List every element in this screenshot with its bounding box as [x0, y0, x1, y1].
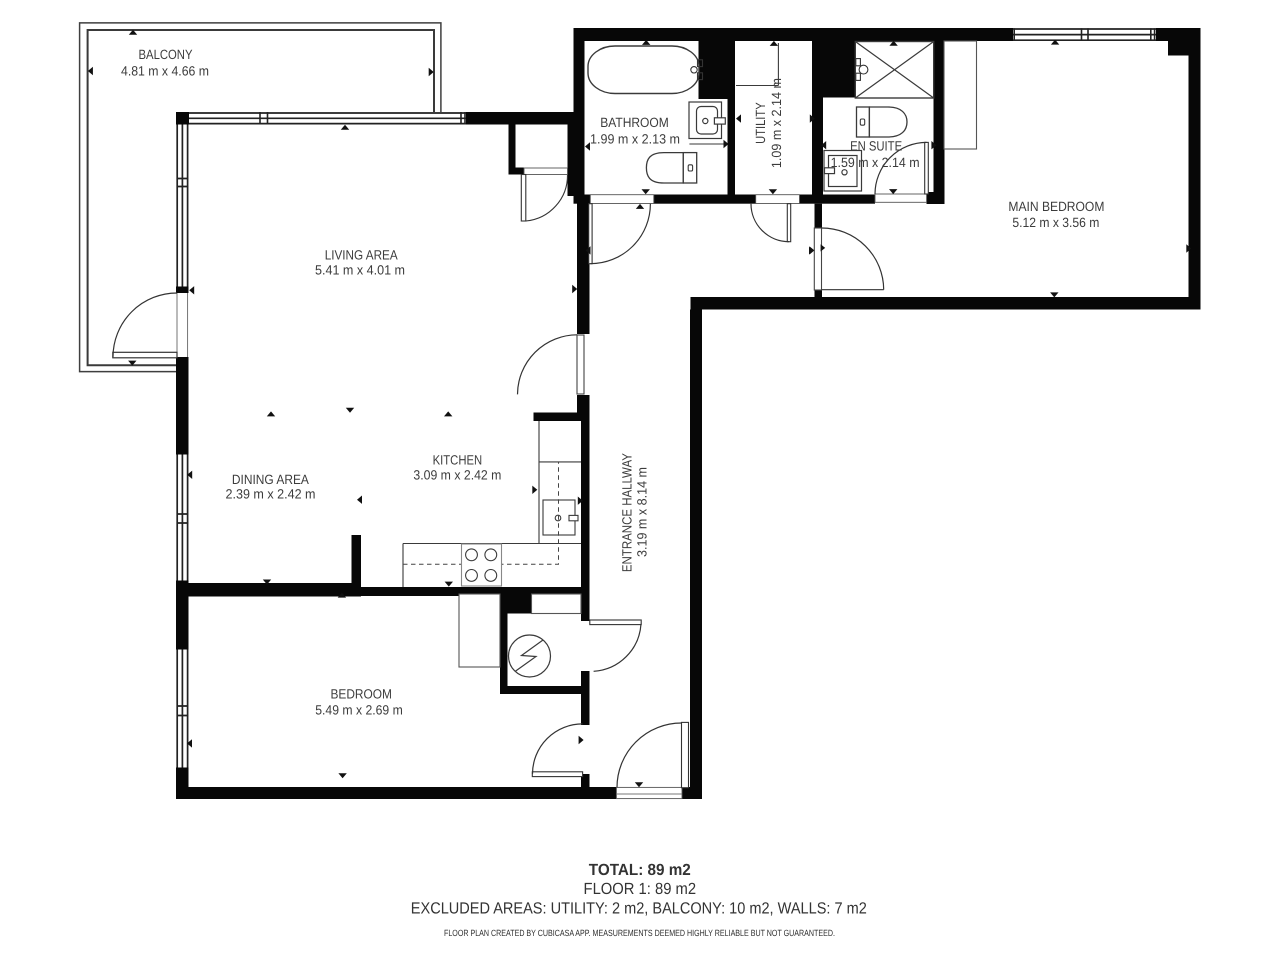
- svg-text:FLOOR PLAN CREATED BY CUBICASA: FLOOR PLAN CREATED BY CUBICASA APP. MEAS…: [444, 928, 835, 938]
- svg-text:3.19 m x 8.14 m: 3.19 m x 8.14 m: [635, 467, 650, 557]
- svg-text:BEDROOM: BEDROOM: [330, 687, 392, 702]
- svg-text:2.39 m x 2.42 m: 2.39 m x 2.42 m: [226, 487, 316, 502]
- svg-text:EN SUITE: EN SUITE: [850, 139, 902, 154]
- svg-text:BATHROOM: BATHROOM: [600, 115, 669, 130]
- svg-text:MAIN BEDROOM: MAIN BEDROOM: [1008, 199, 1104, 214]
- svg-text:FLOOR 1: 89 m2: FLOOR 1: 89 m2: [584, 880, 697, 898]
- svg-text:DINING AREA: DINING AREA: [232, 472, 309, 487]
- svg-text:1.09 m x 2.14 m: 1.09 m x 2.14 m: [769, 78, 784, 168]
- svg-text:3.09 m x 2.42 m: 3.09 m x 2.42 m: [413, 468, 501, 483]
- svg-text:5.41 m x 4.01 m: 5.41 m x 4.01 m: [315, 263, 405, 278]
- svg-text:TOTAL: 89 m2: TOTAL: 89 m2: [589, 861, 691, 879]
- svg-text:LIVING AREA: LIVING AREA: [325, 248, 398, 263]
- svg-text:5.12 m x 3.56 m: 5.12 m x 3.56 m: [1012, 215, 1099, 230]
- svg-text:1.59 m x 2.14 m: 1.59 m x 2.14 m: [831, 155, 920, 170]
- svg-text:EXCLUDED AREAS: UTILITY: 2 m2,: EXCLUDED AREAS: UTILITY: 2 m2, BALCONY: …: [411, 899, 867, 917]
- svg-text:KITCHEN: KITCHEN: [433, 453, 483, 468]
- svg-text:UTILITY: UTILITY: [753, 102, 768, 144]
- svg-text:BALCONY: BALCONY: [139, 47, 193, 62]
- svg-text:ENTRANCE HALLWAY: ENTRANCE HALLWAY: [620, 453, 635, 572]
- svg-text:4.81 m x 4.66 m: 4.81 m x 4.66 m: [121, 64, 209, 79]
- svg-text:5.49 m x 2.69 m: 5.49 m x 2.69 m: [315, 703, 403, 718]
- svg-text:1.99 m x 2.13 m: 1.99 m x 2.13 m: [590, 132, 680, 147]
